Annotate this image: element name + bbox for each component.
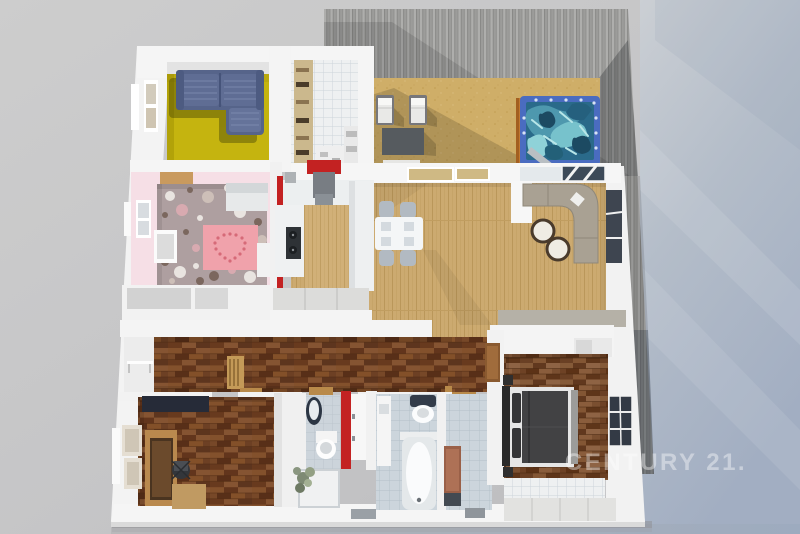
svg-text:CENTURY 21.: CENTURY 21. (565, 449, 747, 476)
